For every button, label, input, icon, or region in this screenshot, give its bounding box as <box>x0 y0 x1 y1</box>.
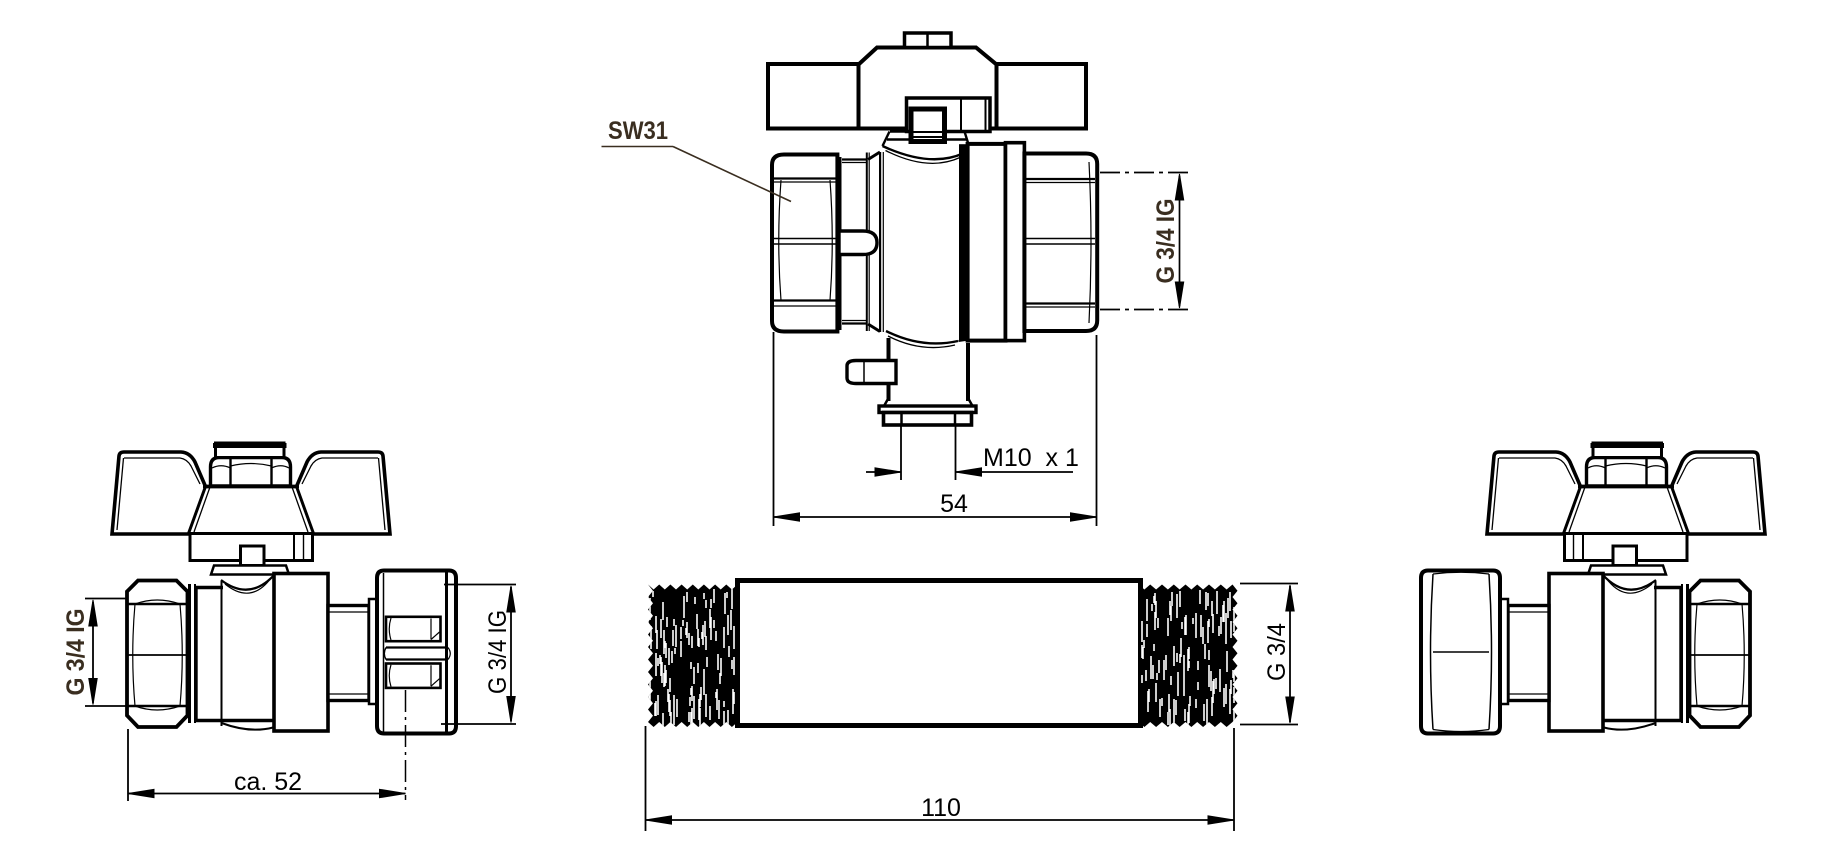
svg-text:G 3/4 IG: G 3/4 IG <box>484 610 512 694</box>
svg-text:M10 x 1: M10 x 1 <box>983 444 1079 472</box>
svg-text:G 3/4 IG: G 3/4 IG <box>62 609 90 696</box>
svg-text:54: 54 <box>940 490 968 518</box>
svg-text:ca. 52: ca. 52 <box>234 768 302 796</box>
svg-text:110: 110 <box>921 794 961 822</box>
svg-text:G 3/4: G 3/4 <box>1263 623 1291 681</box>
svg-text:G 3/4 IG: G 3/4 IG <box>1152 199 1180 284</box>
svg-text:SW31: SW31 <box>608 117 668 145</box>
